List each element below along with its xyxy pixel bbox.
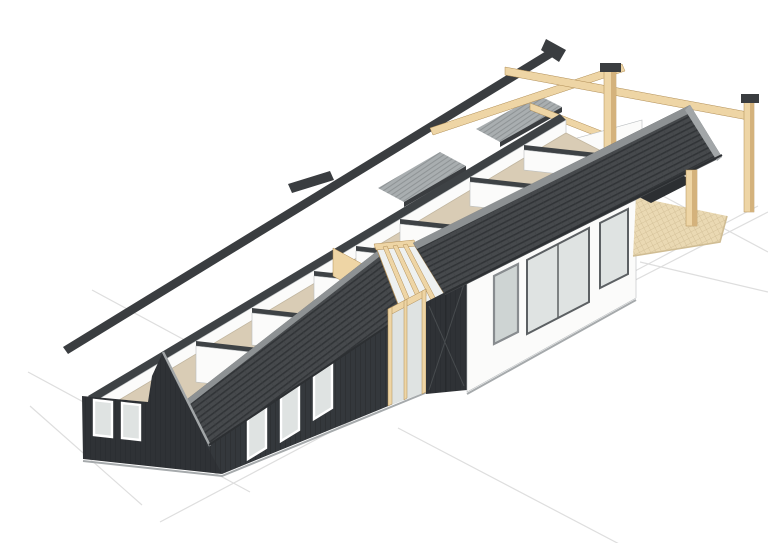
timber-post-shade	[750, 100, 754, 212]
entry-door-unit	[388, 289, 426, 406]
door-mullion	[388, 307, 392, 406]
gable-window	[94, 400, 112, 437]
guide-line	[640, 262, 768, 292]
facade-glazing-end	[600, 209, 628, 288]
guide-line	[92, 290, 192, 344]
post-cap	[741, 94, 759, 103]
door-mullion	[422, 289, 426, 394]
guide-line	[398, 428, 726, 543]
terrace-corner-post	[686, 170, 697, 226]
house-3d-view	[0, 0, 768, 543]
door-mullion	[404, 299, 407, 400]
post-cap	[600, 63, 621, 72]
terrace-deck	[633, 197, 727, 256]
gable-window	[122, 403, 140, 440]
facade-grey-door	[494, 264, 518, 344]
cutaway-render-canvas	[0, 0, 768, 543]
deck-boards	[633, 197, 727, 256]
timber-post-shade	[692, 170, 697, 226]
